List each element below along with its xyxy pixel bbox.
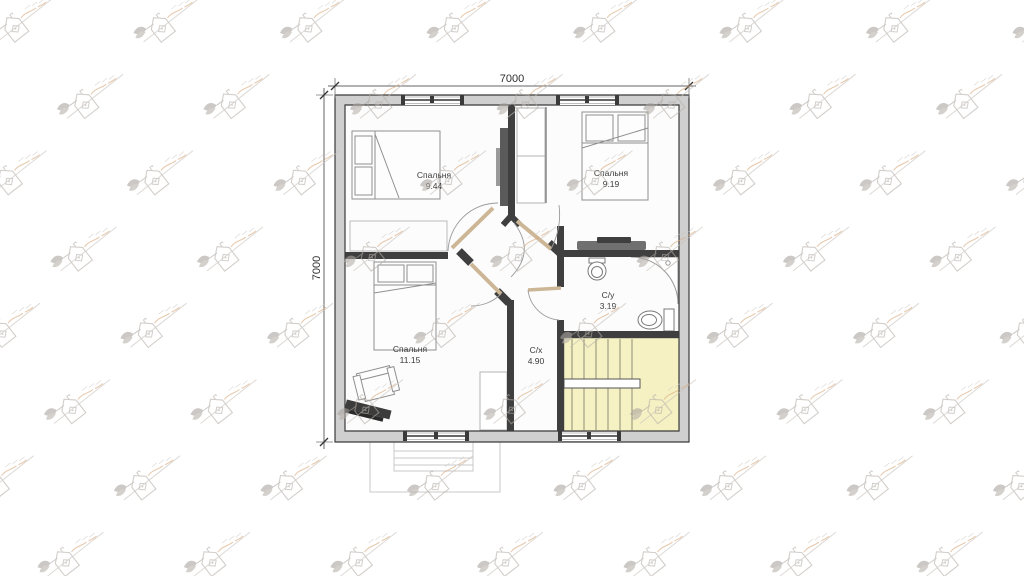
house-logo-watermark: [1013, 0, 1024, 42]
window-bottom-2: [558, 431, 621, 441]
sink: [588, 258, 606, 280]
stair-landing-rail: [564, 379, 640, 388]
house-logo-watermark: [0, 456, 34, 500]
house-logo-watermark: [184, 532, 250, 576]
house-logo-watermark: [770, 532, 836, 576]
toilet: [638, 309, 674, 331]
house-logo-watermark: [713, 151, 779, 195]
floor-plan: 7000 7000 Спальня 9.44 Спальня 9.19 Спал…: [311, 73, 696, 492]
house-logo-watermark: [204, 74, 270, 118]
porch-steps: [370, 442, 500, 492]
house-logo-watermark: [790, 74, 856, 118]
dimension-top: 7000: [328, 73, 696, 98]
floor-plan-canvas: 7000 7000 Спальня 9.44 Спальня 9.19 Спал…: [0, 0, 1024, 576]
house-logo-watermark: [0, 303, 40, 347]
dimension-left: 7000: [311, 88, 333, 449]
house-logo-watermark: [280, 0, 346, 42]
house-logo-watermark: [700, 456, 766, 500]
window-top-2: [556, 95, 619, 105]
house-logo-watermark: [38, 532, 104, 576]
house-logo-watermark: [477, 532, 543, 576]
house-logo-watermark: [267, 303, 333, 347]
house-logo-watermark: [624, 532, 690, 576]
staircase: [564, 338, 679, 431]
house-logo-watermark: [427, 0, 493, 42]
svg-text:4.90: 4.90: [528, 356, 545, 366]
room-label: С/у 3.19: [600, 290, 617, 311]
house-logo-watermark: [936, 74, 1002, 118]
house-logo-watermark: [707, 303, 773, 347]
house-logo-watermark: [197, 227, 263, 271]
house-logo-watermark: [720, 0, 786, 42]
house-logo-watermark: [0, 151, 47, 195]
house-logo-watermark: [930, 227, 996, 271]
house-logo-watermark: [783, 227, 849, 271]
house-logo-watermark: [274, 151, 340, 195]
door-leaf-bathroom: [528, 288, 561, 290]
house-logo-watermark: [191, 380, 257, 424]
house-logo-watermark: [261, 456, 327, 500]
house-logo-watermark: [0, 0, 53, 42]
house-logo-watermark: [121, 303, 187, 347]
house-logo-watermark: [860, 151, 926, 195]
house-logo-watermark: [847, 456, 913, 500]
house-logo-watermark: [57, 74, 123, 118]
house-logo-watermark: [993, 456, 1024, 500]
desk-monitor: [597, 237, 631, 243]
bed-double: [374, 262, 436, 350]
window-bottom-1: [403, 431, 469, 441]
house-logo-watermark: [853, 303, 919, 347]
floor-plan-image: 7000 7000 Спальня 9.44 Спальня 9.19 Спал…: [0, 0, 1024, 576]
house-logo-watermark: [866, 0, 932, 42]
house-logo-watermark: [51, 227, 117, 271]
house-logo-watermark: [44, 380, 110, 424]
house-logo-watermark: [917, 532, 983, 576]
window-top-1: [401, 95, 464, 105]
tv-cabinet: [500, 128, 508, 206]
tv-shelf: [496, 148, 500, 186]
svg-text:С/у: С/у: [602, 290, 616, 300]
house-logo-watermark: [923, 380, 989, 424]
house-logo-watermark: [127, 151, 193, 195]
house-logo-watermark: [1006, 151, 1024, 195]
corridor-wardrobe: [517, 108, 545, 203]
house-logo-watermark: [114, 456, 180, 500]
svg-text:Спальня: Спальня: [393, 344, 428, 354]
house-logo-watermark: [777, 380, 843, 424]
house-logo-watermark: [1000, 303, 1024, 347]
room-label: С/х 4.90: [528, 345, 545, 366]
house-logo-watermark: [134, 0, 200, 42]
house-logo-watermark: [573, 0, 639, 42]
house-logo-watermark: [554, 456, 620, 500]
dimension-top-value: 7000: [500, 73, 524, 85]
svg-text:11.15: 11.15: [400, 355, 421, 365]
house-logo-watermark: [331, 532, 397, 576]
svg-text:3.19: 3.19: [600, 301, 617, 311]
svg-text:С/х: С/х: [530, 345, 544, 355]
dimension-left-value: 7000: [311, 256, 323, 280]
